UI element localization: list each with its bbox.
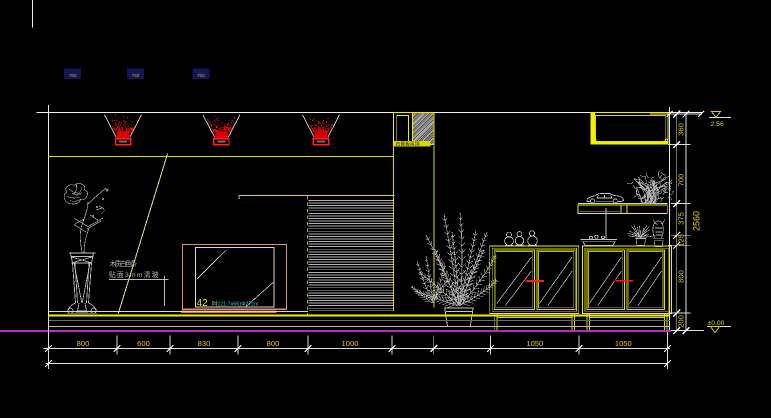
svg-text:750: 750 (132, 73, 140, 78)
svg-text:2.56: 2.56 (711, 121, 724, 128)
svg-text:42: 42 (197, 298, 209, 309)
svg-text:125: 125 (677, 234, 686, 247)
svg-text:2560: 2560 (692, 211, 702, 231)
svg-text:800: 800 (677, 270, 686, 283)
svg-text:1050: 1050 (526, 339, 543, 348)
svg-text:木质白色条: 木质白色条 (110, 259, 138, 268)
svg-text:贴面3mm清玻: 贴面3mm清玻 (109, 270, 159, 279)
svg-text:1000: 1000 (342, 339, 359, 348)
svg-text:800: 800 (267, 339, 280, 348)
svg-text:1050: 1050 (615, 339, 632, 348)
svg-text:(21.7x66)Φ27cm: (21.7x66)Φ27cm (218, 302, 259, 308)
svg-text:750: 750 (69, 73, 77, 78)
svg-text:800: 800 (77, 339, 90, 348)
svg-text:700: 700 (677, 174, 686, 187)
svg-text:830: 830 (198, 339, 211, 348)
svg-text:200: 200 (677, 315, 686, 328)
svg-text:石膏板吊頂: 石膏板吊頂 (396, 140, 420, 147)
svg-text:375: 375 (677, 212, 686, 225)
svg-text:600: 600 (137, 339, 150, 348)
svg-text:750: 750 (197, 73, 205, 78)
svg-text:360: 360 (677, 123, 686, 136)
